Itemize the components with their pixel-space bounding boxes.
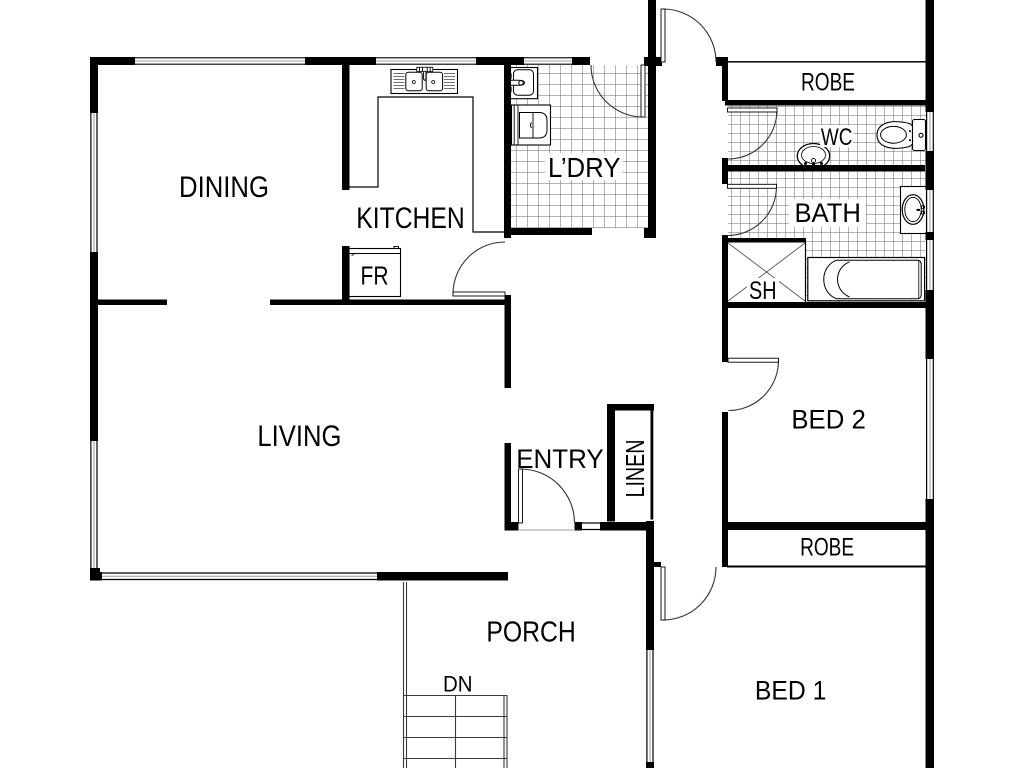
svg-text:SH: SH — [749, 277, 777, 305]
svg-text:PORCH: PORCH — [486, 617, 576, 649]
svg-text:LIVING: LIVING — [257, 420, 341, 453]
svg-text:ROBE: ROBE — [800, 535, 854, 562]
svg-text:BED 2: BED 2 — [791, 405, 866, 435]
svg-text:FR: FR — [361, 263, 389, 291]
svg-text:ENTRY: ENTRY — [516, 444, 604, 474]
svg-text:WC: WC — [821, 124, 853, 151]
svg-text:DINING: DINING — [179, 171, 269, 204]
svg-text:BATH: BATH — [794, 198, 861, 228]
svg-text:DN: DN — [443, 672, 473, 697]
svg-text:ROBE: ROBE — [801, 69, 855, 96]
svg-text:BED 1: BED 1 — [755, 675, 827, 705]
svg-text:LINEN: LINEN — [620, 440, 650, 498]
svg-text:KITCHEN: KITCHEN — [356, 202, 465, 235]
svg-text:L’DRY: L’DRY — [548, 152, 621, 183]
